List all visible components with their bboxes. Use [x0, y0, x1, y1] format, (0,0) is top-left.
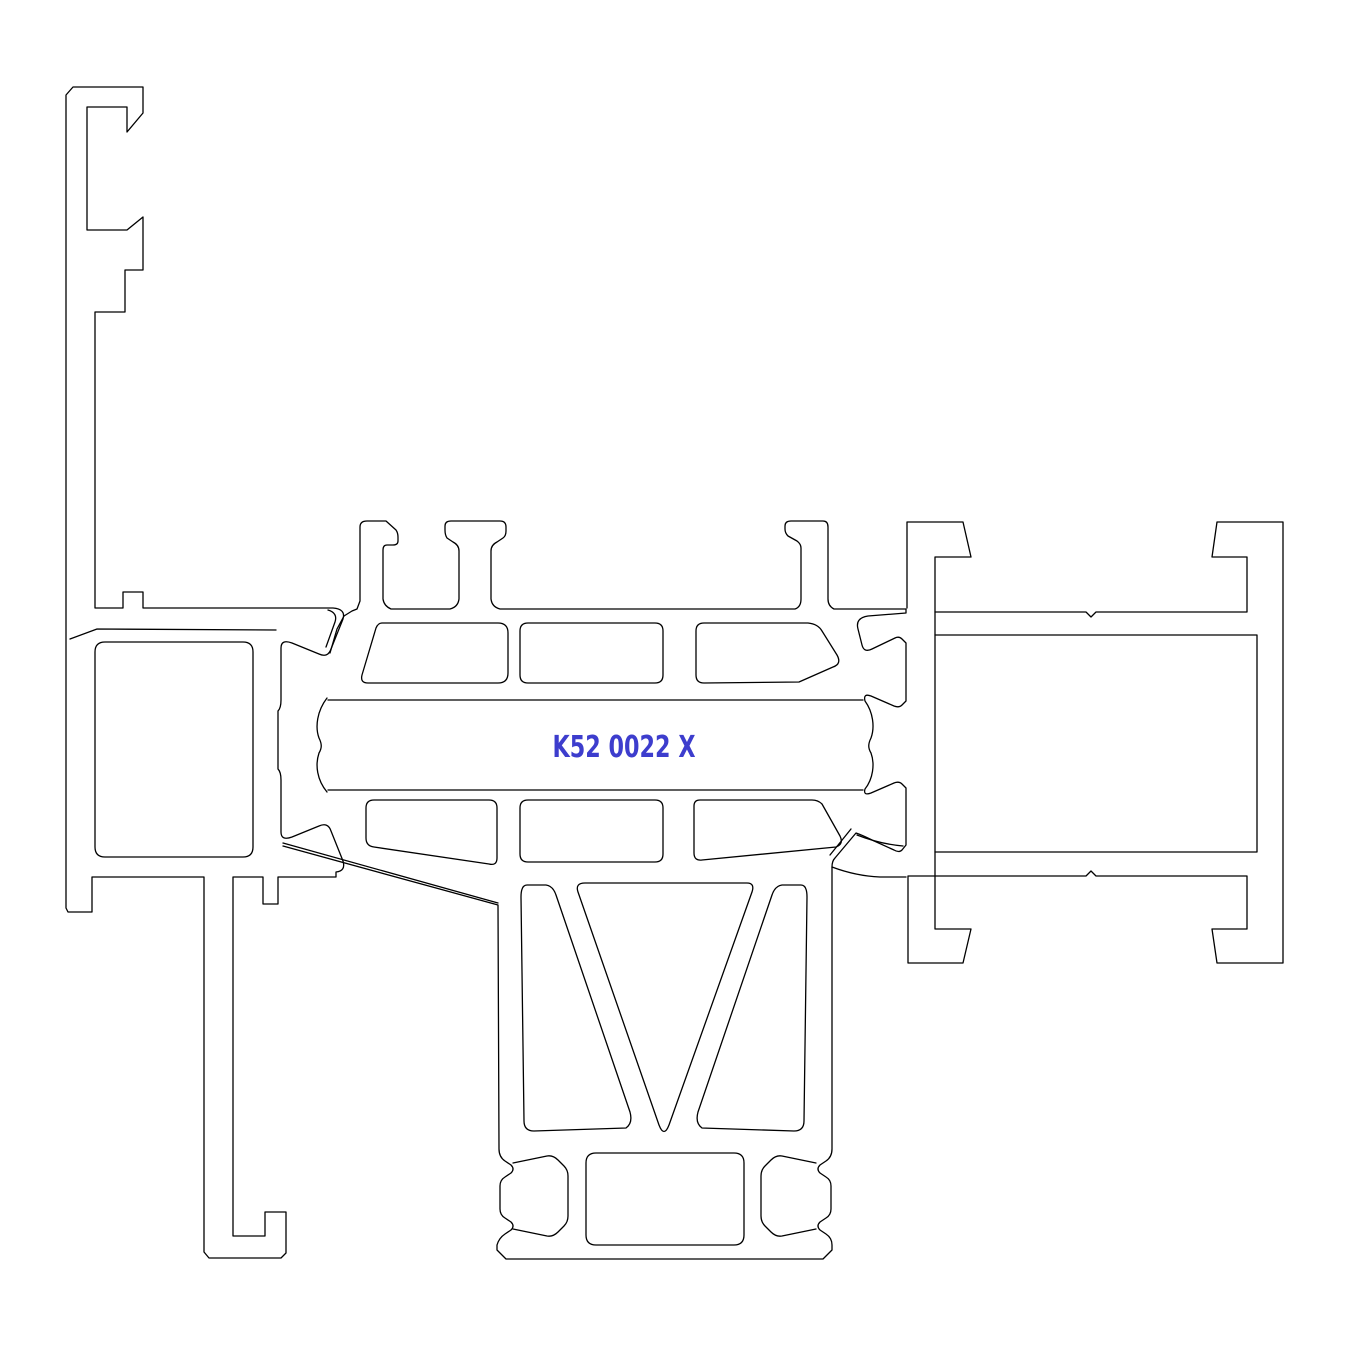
- lower-chamber-d: [366, 800, 497, 864]
- left-thermal-strip: [317, 698, 327, 792]
- frame-main-chamber: [95, 642, 253, 857]
- lower-chamber-f: [694, 800, 841, 860]
- lower-chamber-e: [520, 800, 663, 862]
- upper-chamber-b: [520, 623, 663, 683]
- sash-underside-diagonal: [283, 843, 498, 903]
- rail-right-screw-channel: [761, 1156, 816, 1236]
- sash-right-end-and-bottom-rail-outline: [283, 609, 906, 1259]
- left-frame-profile-outline: [66, 87, 344, 1258]
- frame-top-edge-line: [70, 629, 276, 639]
- drawing-canvas: K52 0022 X: [0, 0, 1348, 1348]
- rail-left-chamber: [521, 885, 631, 1131]
- rail-right-chamber: [697, 885, 807, 1131]
- upper-chamber-a: [362, 623, 508, 683]
- right-profile-outer-contour: [935, 522, 1283, 963]
- upper-chamber-c: [696, 623, 839, 683]
- profile-drawing: K52 0022 X: [0, 0, 1348, 1348]
- part-number-label: K52 0022 X: [553, 730, 696, 765]
- rail-left-screw-channel: [513, 1156, 568, 1236]
- lower-right-bottom-band: [832, 867, 906, 877]
- rail-v-chamber: [577, 883, 753, 1132]
- right-profile-chamber: [935, 635, 1257, 852]
- sash-top-shell-outline: [330, 521, 906, 653]
- right-profile-left-side: [907, 522, 971, 963]
- extrusion-line-art: [66, 87, 1283, 1259]
- rail-center-chamber: [586, 1153, 744, 1245]
